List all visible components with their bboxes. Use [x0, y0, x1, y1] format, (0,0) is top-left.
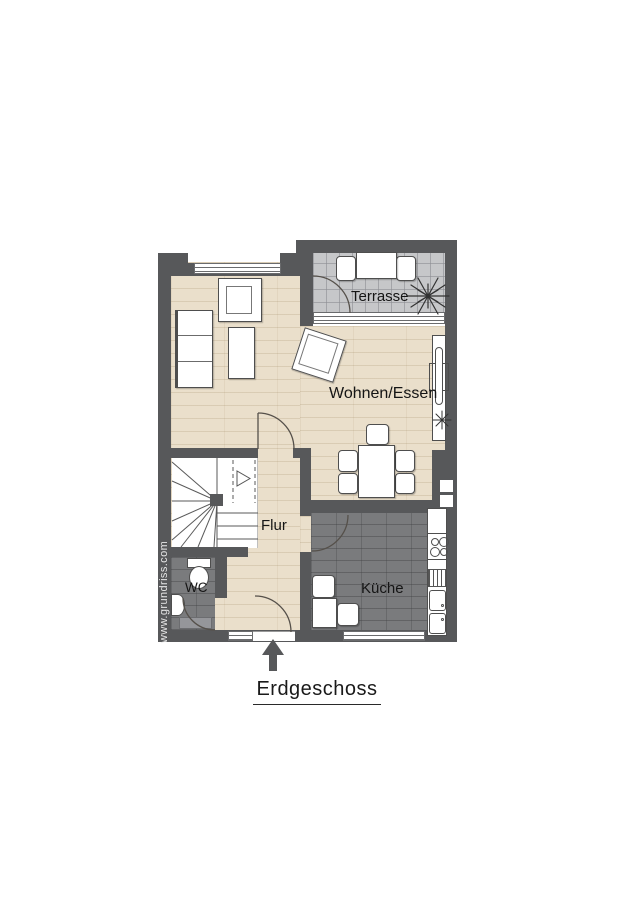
- wall: [300, 250, 313, 326]
- floor-plan-page: { "title": "Erdgeschoss", "watermark": "…: [0, 0, 634, 900]
- stove-burner: [430, 547, 440, 557]
- stove: [427, 533, 447, 560]
- armchair-seat: [226, 286, 252, 314]
- stove-burner: [431, 538, 439, 546]
- wc-sink: [171, 594, 185, 616]
- kitchen-chair: [337, 603, 359, 626]
- staircase: [172, 458, 258, 548]
- sofa-cushion-line: [178, 335, 212, 336]
- side-table-inner: [298, 334, 338, 374]
- kitchen-chair: [312, 575, 335, 598]
- wall: [158, 448, 258, 458]
- chimney-shaft: [440, 495, 453, 507]
- stove-burner: [440, 548, 448, 556]
- room-label-wohnen-essen: Wohnen/Essen: [329, 385, 437, 403]
- kitchen-door-threshold-floor: [300, 516, 311, 552]
- kitchen-sink: [429, 613, 446, 634]
- dining-table: [358, 445, 395, 498]
- floor-title: Erdgeschoss: [0, 678, 634, 705]
- dining-chair: [395, 473, 415, 494]
- floor-plan: Terrasse Wohnen/Essen Flur WC Küche www.…: [0, 0, 634, 900]
- dining-chair: [338, 450, 358, 472]
- chimney-shaft: [440, 480, 453, 492]
- window: [194, 263, 281, 274]
- coffee-table: [228, 327, 255, 379]
- terrace-chair: [336, 256, 356, 281]
- stove-burner: [439, 537, 449, 547]
- room-label-terrasse: Terrasse: [351, 288, 409, 305]
- entrance-arrow-icon: [262, 639, 284, 671]
- room-label-flur: Flur: [261, 517, 287, 534]
- sofa-cushion-line: [178, 361, 212, 362]
- floor-title-text: Erdgeschoss: [253, 678, 380, 705]
- kitchen-sink: [429, 590, 446, 611]
- dining-chair: [338, 473, 358, 494]
- window: [343, 631, 425, 641]
- sink-drain: [441, 618, 444, 621]
- kitchen-drainer: [428, 569, 446, 587]
- sofa: [175, 310, 213, 388]
- armchair: [218, 278, 262, 322]
- window: [228, 631, 253, 641]
- watermark: www.grundriss.com: [157, 497, 172, 643]
- wall: [300, 552, 311, 642]
- wall: [215, 557, 227, 598]
- entrance-doorway: [253, 631, 295, 641]
- room-label-wc: WC: [185, 580, 208, 595]
- kitchen-table: [312, 598, 337, 628]
- sink-drain: [441, 604, 444, 607]
- terrace-chair: [396, 256, 416, 281]
- room-label-kueche: Küche: [361, 580, 404, 597]
- wall: [311, 500, 445, 513]
- dining-chair: [395, 450, 415, 472]
- dining-chair: [366, 424, 389, 445]
- window: [313, 312, 445, 324]
- terrace-table: [356, 252, 397, 279]
- wall: [300, 448, 311, 516]
- wc-mat: [179, 617, 212, 629]
